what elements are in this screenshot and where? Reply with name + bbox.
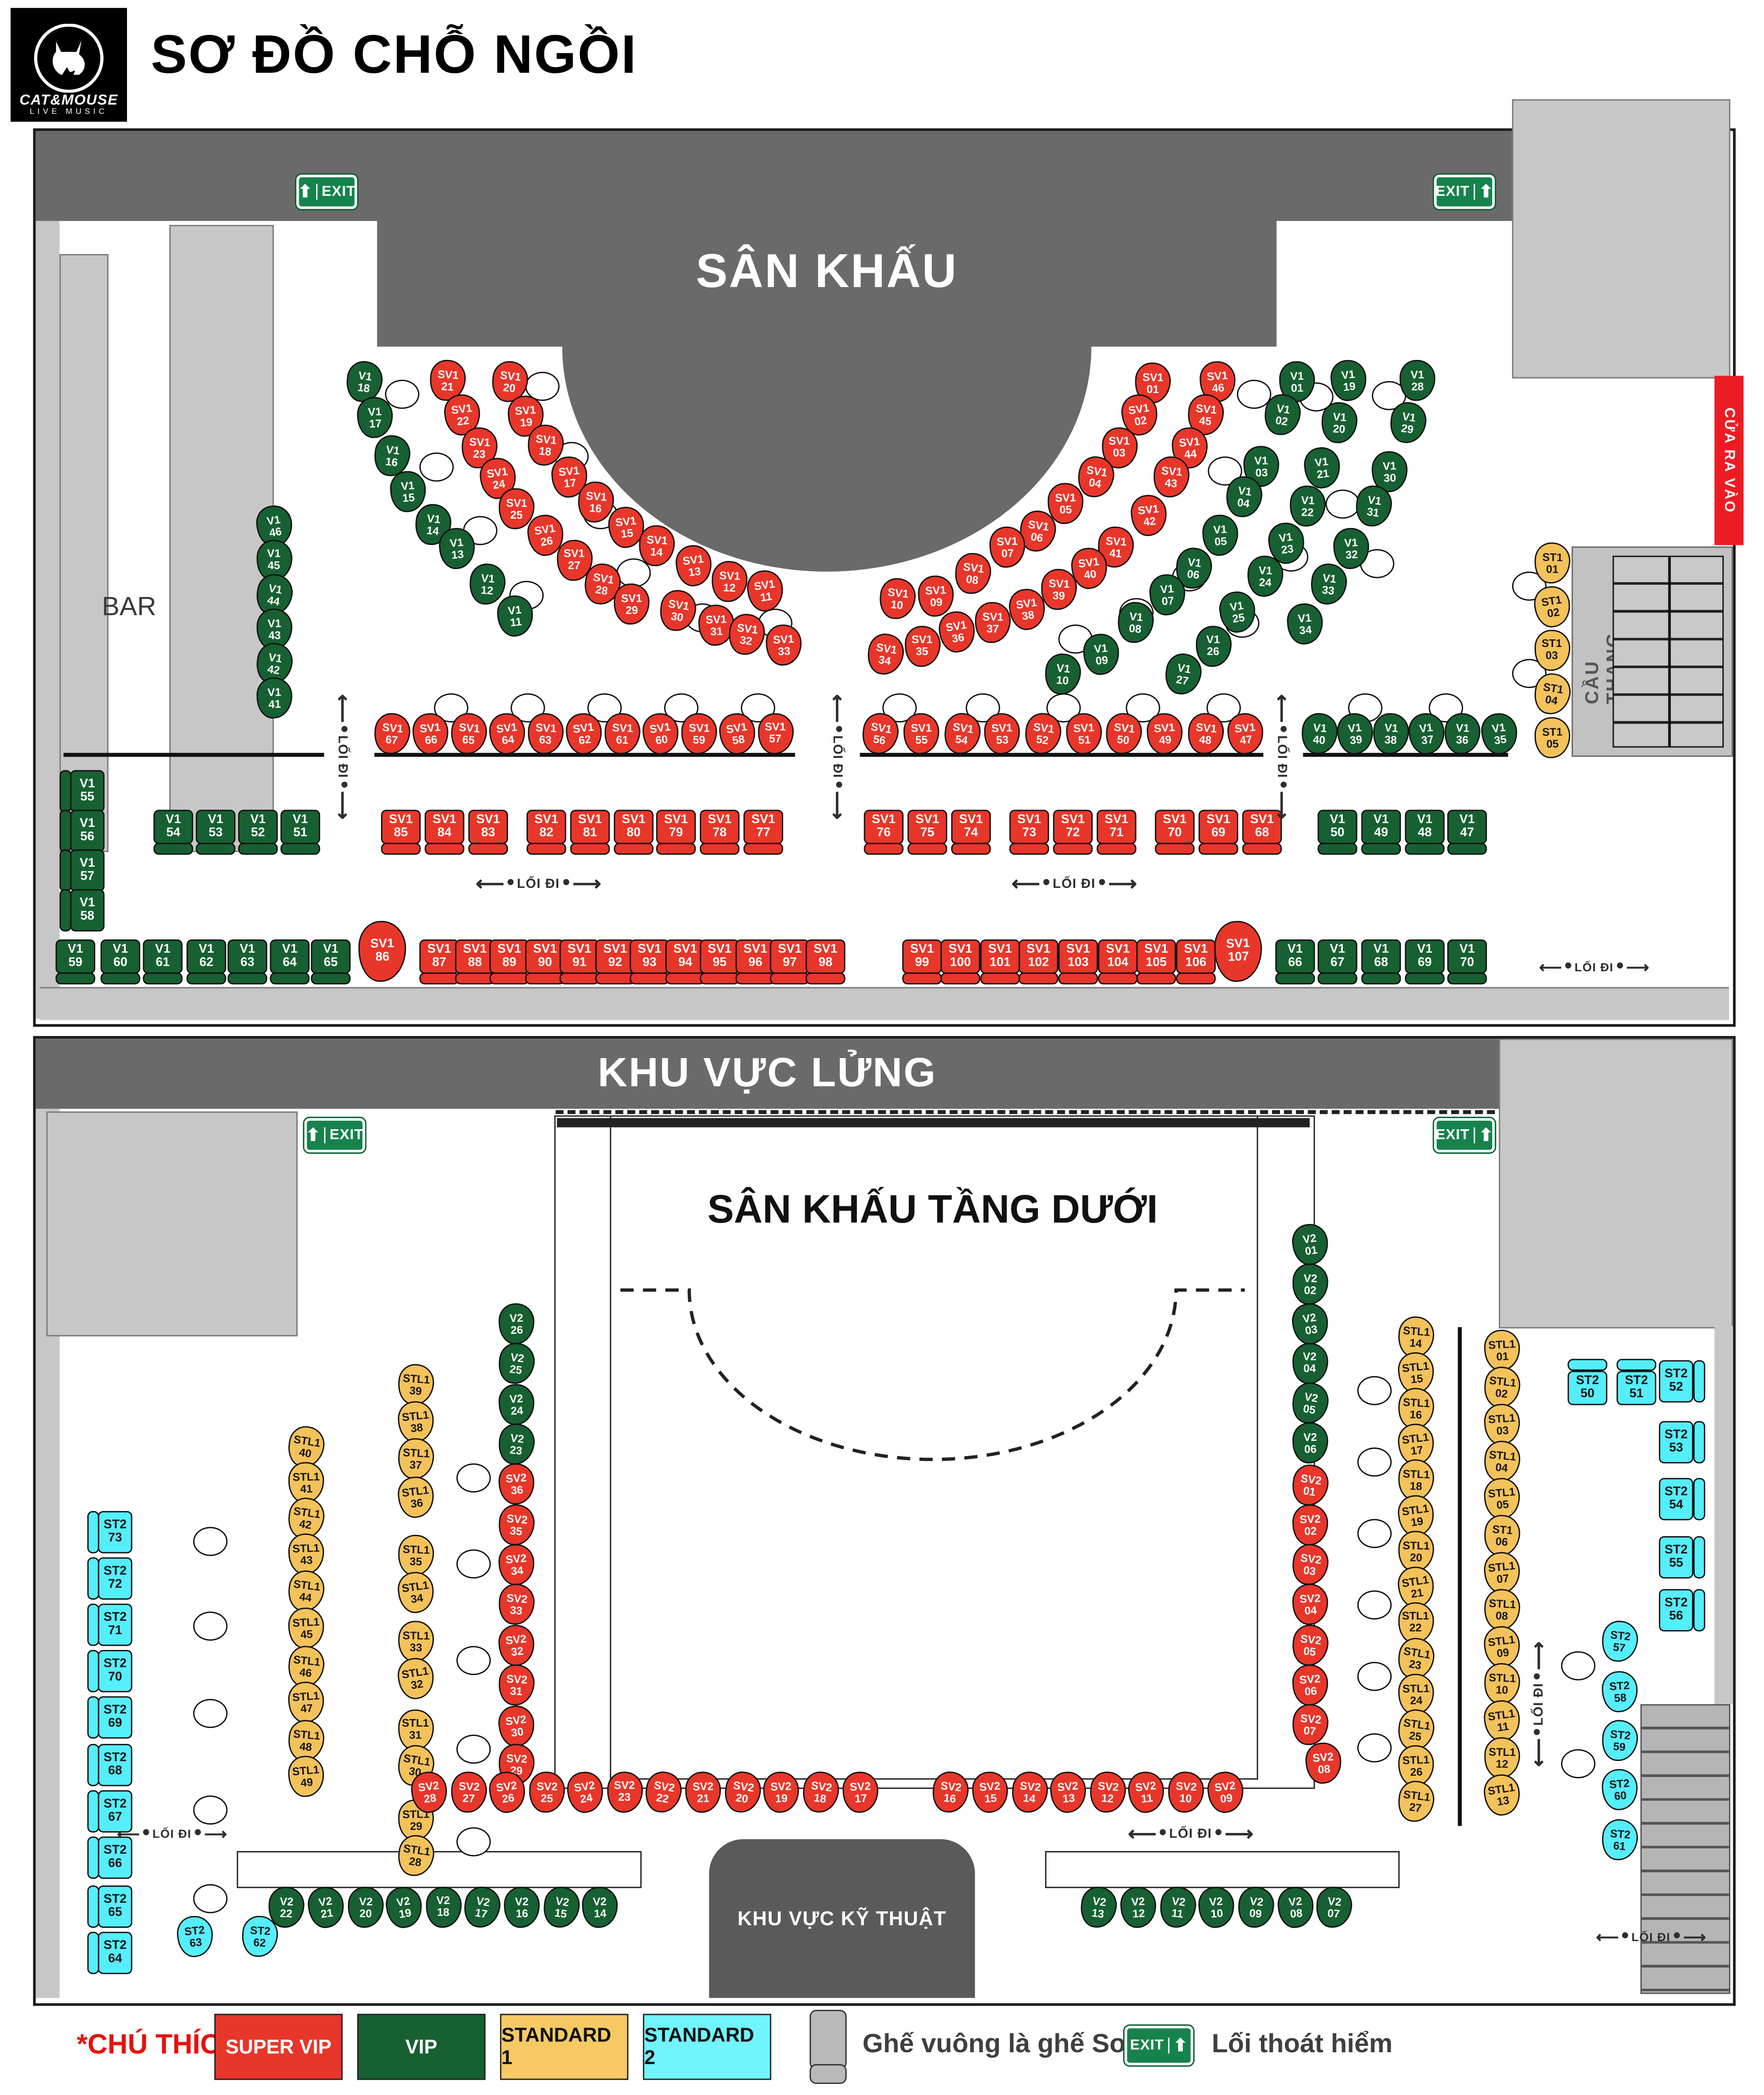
sofa-backrest	[1447, 973, 1487, 984]
exit-label: EXIT	[1432, 184, 1475, 200]
sofa-seat: V165	[311, 940, 351, 974]
sofa-backrest	[60, 849, 72, 892]
seat-v1-52[interactable]: V152	[238, 810, 278, 858]
seat-v1-65[interactable]: V165	[311, 940, 351, 987]
sofa-backrest	[614, 843, 654, 855]
sofa-backrest	[1693, 1536, 1705, 1578]
sofa-backrest	[1361, 843, 1401, 855]
sofa-seat: ST271	[98, 1604, 132, 1646]
seat-sv2-21[interactable]: SV221	[684, 1771, 721, 1812]
exit-sign-lower-right: ⬆EXIT	[1433, 1117, 1496, 1154]
table	[456, 1549, 491, 1578]
seat-sv1-55[interactable]: SV155	[903, 712, 939, 754]
sofa-backrest	[1361, 973, 1401, 984]
exit-label: EXIT	[1432, 1128, 1475, 1144]
table	[1357, 1662, 1391, 1691]
seat-sv1-96[interactable]: SV196	[736, 940, 776, 987]
sofa-backrest	[87, 1511, 99, 1553]
sofa-seat: SV196	[736, 940, 776, 974]
seat-v1-53[interactable]: V153	[196, 810, 236, 858]
legend-swatch-standard-1: STANDARD 1	[500, 2014, 628, 2080]
sofa-backrest	[455, 973, 495, 984]
mezz-left-block	[46, 1111, 298, 1336]
sofa-backrest	[941, 973, 980, 984]
seat-sv1-75[interactable]: SV175	[908, 810, 947, 858]
seat-sv1-77[interactable]: SV177	[743, 810, 783, 858]
sofa-seat: ST253	[1659, 1421, 1693, 1463]
sofa-backrest	[228, 973, 268, 984]
stage-label: SÂN KHẤU	[696, 243, 958, 299]
sofa-seat: V150	[1318, 810, 1358, 844]
sofa-seat: V147	[1447, 810, 1487, 844]
seat-sv1-85[interactable]: SV185	[381, 810, 421, 858]
sofa-seat: V152	[238, 810, 278, 844]
entrance-label: CỬA RA VÀO	[1721, 407, 1737, 513]
seat-st2-50[interactable]: ST250	[1568, 1357, 1607, 1405]
sofa-backrest	[1693, 1421, 1705, 1463]
sofa-backrest	[420, 973, 459, 984]
sofa-seat: SV195	[700, 940, 740, 974]
sofa-seat: V169	[1405, 940, 1445, 974]
staircase-lower	[1640, 1704, 1731, 1994]
seat-v1-24[interactable]: V124	[1246, 555, 1283, 596]
sofa-seat: ST273	[98, 1511, 132, 1553]
seat-sv1-102[interactable]: SV1102	[1019, 940, 1058, 987]
seat-st2-64[interactable]: ST264	[85, 1932, 133, 1974]
sofa-backrest	[87, 1696, 99, 1738]
seat-sv1-25[interactable]: SV125	[498, 487, 534, 529]
seat-sv1-99[interactable]: SV199	[902, 940, 942, 987]
table	[193, 1796, 227, 1825]
seat-sv1-104[interactable]: SV1104	[1098, 940, 1138, 987]
sofa-backrest	[143, 973, 183, 984]
table	[1561, 1651, 1596, 1680]
left-wall	[36, 221, 59, 1019]
seat-stl1-41[interactable]: STL141	[287, 1461, 324, 1503]
sofa-seat: ST270	[98, 1650, 132, 1692]
sofa-seat: SV1101	[980, 940, 1020, 974]
table	[1561, 1749, 1596, 1778]
sofa-seat: SV183	[468, 810, 508, 844]
seat-st1-01[interactable]: ST101	[1534, 542, 1570, 583]
sofa-backrest	[951, 843, 991, 855]
legend-swatch-super-vip: SUPER VIP	[214, 2014, 342, 2080]
sofa-seat: ST252	[1659, 1360, 1693, 1403]
sofa-seat: SV189	[489, 940, 529, 974]
sofa-seat: V157	[70, 849, 105, 892]
sofa-backrest	[560, 973, 599, 984]
exit-label: EXIT	[324, 1128, 367, 1144]
sofa-backrest	[630, 973, 670, 984]
aisle-label: ⟵•LỐI ĐI•⟶	[1539, 955, 1649, 979]
seat-sv1-69[interactable]: SV169	[1198, 810, 1238, 858]
seat-st2-73[interactable]: ST273	[85, 1511, 133, 1553]
sofa-backrest	[60, 889, 72, 931]
sofa-backrest	[1098, 973, 1138, 984]
table	[420, 453, 454, 482]
stair-divider	[1668, 557, 1670, 746]
sofa-seat: SV170	[1155, 810, 1195, 844]
sofa-backrest	[381, 843, 421, 855]
aisle-label: ⟵•LỐI ĐI•⟶	[1527, 1642, 1550, 1767]
sofa-seat: SV188	[455, 940, 495, 974]
sofa-backrest	[1693, 1360, 1705, 1403]
sofa-backrest	[806, 973, 845, 984]
bottom-wall-strip	[40, 987, 1729, 1020]
page-title: SƠ ĐỒ CHỖ NGỒI	[151, 24, 638, 86]
seat-sv1-83[interactable]: SV183	[468, 810, 508, 858]
seat-sv2-25[interactable]: SV225	[528, 1771, 565, 1812]
sofa-backrest	[87, 1932, 99, 1974]
sofa-backrest	[902, 973, 942, 984]
legend-swatch-standard-2: STANDARD 2	[643, 2014, 771, 2080]
aisle-label: ⟵•LỐI ĐI•⟶	[825, 694, 849, 820]
seat-st1-05[interactable]: ST105	[1534, 716, 1570, 757]
seat-v2-02[interactable]: V202	[1292, 1263, 1328, 1304]
seat-v1-66[interactable]: V166	[1275, 940, 1315, 987]
sofa-backrest	[1053, 843, 1093, 855]
seat-stl1-12[interactable]: STL112	[1483, 1736, 1520, 1778]
sofa-backrest	[1693, 1478, 1705, 1520]
sofa-seat: ST256	[1659, 1589, 1693, 1631]
exit-label: EXIT	[316, 184, 359, 200]
sofa-backrest	[1058, 973, 1098, 984]
seat-st2-71[interactable]: ST271	[85, 1604, 133, 1646]
sofa-seat: V158	[70, 889, 105, 931]
seat-v1-51[interactable]: V151	[281, 810, 320, 858]
seat-sv1-93[interactable]: SV193	[630, 940, 670, 987]
seat-sv1-95[interactable]: SV195	[700, 940, 740, 987]
exit-sign-lower-left: ⬆EXIT	[303, 1117, 367, 1154]
sofa-backrest	[665, 973, 705, 984]
sofa-seat: V149	[1361, 810, 1401, 844]
seat-sv1-74[interactable]: SV174	[951, 810, 991, 858]
seat-v1-67[interactable]: V167	[1318, 940, 1358, 987]
sofa-seat: ST255	[1659, 1536, 1693, 1578]
seat-sv1-91[interactable]: SV191	[560, 940, 599, 987]
sofa-backrest	[1009, 843, 1049, 855]
seat-sv1-79[interactable]: SV179	[656, 810, 696, 858]
sofa-backrest	[770, 973, 810, 984]
sofa-seat: SV181	[570, 810, 610, 844]
sofa-backrest	[468, 843, 508, 855]
seat-sv1-29[interactable]: SV129	[613, 583, 649, 624]
legend-sofa-note: Ghế vuông là ghế Sofa	[863, 2030, 1149, 2060]
table	[385, 380, 419, 409]
sofa-seat: SV177	[743, 810, 783, 844]
sofa-seat: V168	[1361, 940, 1401, 974]
seat-sv1-90[interactable]: SV190	[525, 940, 565, 987]
top-right-wall	[1512, 99, 1731, 378]
seat-st2-55[interactable]: ST255	[1659, 1536, 1707, 1578]
sofa-seat: SV1100	[941, 940, 980, 974]
sofa-seat: SV174	[951, 810, 991, 844]
aisle-label: ⟵•LỐI ĐI•⟶	[1270, 694, 1294, 820]
seat-v1-61[interactable]: V161	[143, 940, 183, 987]
seat-stl1-24[interactable]: STL124	[1397, 1673, 1434, 1714]
seat-st2-54[interactable]: ST254	[1659, 1478, 1707, 1520]
sofa-backrest	[1318, 973, 1358, 984]
sofa-backrest	[101, 973, 141, 984]
sofa-backrest	[55, 973, 95, 984]
seat-st2-68[interactable]: ST268	[85, 1744, 133, 1786]
sofa-seat: ST254	[1659, 1478, 1693, 1520]
sofa-seat: SV191	[560, 940, 599, 974]
sofa-backrest	[1198, 843, 1238, 855]
table	[193, 1884, 227, 1913]
sofa-backrest	[908, 843, 947, 855]
seat-sv1-87[interactable]: SV187	[420, 940, 459, 987]
sofa-backrest	[1693, 1589, 1705, 1631]
mezzanine-title: KHU VỰC LỬNG	[598, 1049, 937, 1097]
up-arrow-icon: ⬆	[294, 181, 316, 202]
platform-right	[1045, 1851, 1400, 1888]
table	[456, 1646, 491, 1675]
seat-st2-69[interactable]: ST269	[85, 1696, 133, 1738]
sofa-seat: SV194	[665, 940, 705, 974]
sofa-seat: SV169	[1198, 810, 1238, 844]
sofa-seat: SV197	[770, 940, 810, 974]
seat-st2-53[interactable]: ST253	[1659, 1421, 1707, 1463]
platform-left	[237, 1851, 641, 1888]
cat-logo-icon	[30, 24, 107, 93]
sofa-seat: SV198	[806, 940, 845, 974]
sofa-backrest	[736, 973, 776, 984]
seat-st2-70[interactable]: ST270	[85, 1650, 133, 1692]
seat-v1-50[interactable]: V150	[1318, 810, 1358, 858]
seat-v1-58[interactable]: V158	[57, 889, 105, 931]
sofa-backrest	[87, 1837, 99, 1879]
seat-v1-47[interactable]: V147	[1447, 810, 1487, 858]
sofa-seat: SV175	[908, 810, 947, 844]
sofa-seat: SV184	[425, 810, 464, 844]
sofa-backrest	[525, 973, 565, 984]
aisle-label: ⟵•LỐI ĐI•⟶	[1596, 1925, 1706, 1949]
sofa-backrest	[980, 973, 1020, 984]
up-arrow-icon: ⬆	[302, 1125, 324, 1146]
aisle-label: ⟵•LỐI ĐI•⟶	[331, 694, 354, 820]
sofa-backrest	[1405, 843, 1445, 855]
seat-stl1-33[interactable]: STL133	[397, 1620, 433, 1661]
exit-label: EXIT	[1126, 2038, 1169, 2054]
sofa-backrest	[154, 843, 193, 855]
sofa-backrest	[87, 1650, 99, 1692]
sofa-backrest	[1568, 1359, 1607, 1371]
sofa-backrest	[1097, 843, 1137, 855]
sofa-seat: SV187	[420, 940, 459, 974]
sofa-backrest	[87, 1744, 99, 1786]
venue-logo: CAT&MOUSE LIVE MUSIC	[11, 8, 127, 122]
aisle-label: ⟵•LỐI ĐI•⟶	[1012, 872, 1137, 895]
sofa-seat: SV178	[700, 810, 740, 844]
seat-sv1-71[interactable]: SV171	[1097, 810, 1137, 858]
seat-sv1-82[interactable]: SV182	[527, 810, 566, 858]
seat-sv1-105[interactable]: SV1105	[1136, 940, 1176, 987]
sofa-seat: V148	[1405, 810, 1445, 844]
technical-area: KHU VỰC KỸ THUẬT	[709, 1839, 975, 1998]
sofa-backrest	[270, 973, 310, 984]
seat-v1-59[interactable]: V159	[55, 940, 95, 987]
sofa-seat: V170	[1447, 940, 1487, 974]
sofa-seat: V162	[187, 940, 226, 974]
seat-sv1-81[interactable]: SV181	[570, 810, 610, 858]
sofa-seat: SV1103	[1058, 940, 1098, 974]
sofa-seat: SV185	[381, 810, 421, 844]
seat-v2-20[interactable]: V220	[347, 1886, 383, 1927]
seat-v1-62[interactable]: V162	[187, 940, 226, 987]
sofa-backrest	[60, 810, 72, 852]
seat-sv1-92[interactable]: SV192	[595, 940, 635, 987]
seat-sv1-37[interactable]: SV137	[974, 601, 1010, 643]
sofa-seat: ST269	[98, 1696, 132, 1738]
seat-v1-69[interactable]: V169	[1405, 940, 1445, 987]
sofa-backrest	[1318, 843, 1358, 855]
sofa-seat: ST264	[98, 1932, 132, 1974]
exit-sign-top-right: ⬆EXIT	[1433, 173, 1496, 210]
sofa-backrest	[864, 843, 904, 855]
seat-v1-68[interactable]: V168	[1361, 940, 1401, 987]
up-arrow-icon: ⬆	[1475, 1125, 1497, 1146]
mezz-right-wall	[1714, 1326, 1733, 1704]
table	[1325, 489, 1360, 519]
seat-v2-16[interactable]: V216	[503, 1886, 539, 1927]
seat-sv1-73[interactable]: SV173	[1009, 810, 1049, 858]
legend-swatch-vip: VIP	[357, 2014, 486, 2080]
sofa-seat: V160	[101, 940, 141, 974]
sofa-seat: SV176	[864, 810, 904, 844]
sofa-backrest	[1405, 973, 1445, 984]
seat-v1-28[interactable]: V128	[1399, 359, 1435, 401]
sofa-seat: V166	[1275, 940, 1315, 974]
seat-st2-72[interactable]: ST272	[85, 1557, 133, 1600]
sofa-seat: ST272	[98, 1557, 132, 1600]
floor-line	[63, 753, 324, 757]
seat-st2-56[interactable]: ST256	[1659, 1589, 1707, 1631]
table	[1357, 1376, 1391, 1405]
sofa-backrest	[1155, 843, 1195, 855]
table	[456, 1463, 491, 1492]
seat-sv1-72[interactable]: SV172	[1053, 810, 1093, 858]
seat-sv1-59[interactable]: SV159	[680, 712, 717, 754]
sofa-backrest	[87, 1885, 99, 1928]
sofa-backrest	[1136, 973, 1176, 984]
sofa-seat: SV192	[595, 940, 635, 974]
seat-st2-65[interactable]: ST265	[85, 1885, 133, 1928]
seat-sv1-89[interactable]: SV189	[489, 940, 529, 987]
entrance-door: CỬA RA VÀO	[1714, 376, 1744, 545]
seat-v1-70[interactable]: V170	[1447, 940, 1487, 987]
sofa-backrest	[1275, 973, 1315, 984]
sofa-seat: SV180	[614, 810, 654, 844]
logo-text: CAT&MOUSE	[19, 93, 118, 109]
sofa-seat: SV171	[1097, 810, 1137, 844]
stage-lower-label: SÂN KHẤU TẦNG DƯỚI	[707, 1188, 1158, 1233]
seat-v1-49[interactable]: V149	[1361, 810, 1401, 858]
bar-counter-left	[60, 254, 109, 852]
seat-sv1-101[interactable]: SV1101	[980, 940, 1020, 987]
mezz-top-right-wall	[1499, 1039, 1733, 1328]
staircase-upper: CẦU THANG	[1572, 547, 1733, 757]
sofa-seat: SV1106	[1176, 940, 1216, 974]
seat-sv1-80[interactable]: SV180	[614, 810, 654, 858]
sofa-seat: V154	[154, 810, 193, 844]
seat-sv1-94[interactable]: SV194	[665, 940, 705, 987]
seat-st2-52[interactable]: ST252	[1659, 1360, 1707, 1403]
seat-sv1-84[interactable]: SV184	[425, 810, 464, 858]
seat-sv1-70[interactable]: SV170	[1155, 810, 1195, 858]
seat-sv1-98[interactable]: SV198	[806, 940, 845, 987]
sofa-seat: SV193	[630, 940, 670, 974]
sofa-seat: V156	[70, 810, 105, 852]
sofa-seat: SV182	[527, 810, 566, 844]
seat-v1-54[interactable]: V154	[154, 810, 193, 858]
seat-sv1-100[interactable]: SV1100	[941, 940, 980, 987]
seat-sv1-78[interactable]: SV178	[700, 810, 740, 858]
seat-sv1-76[interactable]: SV176	[864, 810, 904, 858]
stage-lower-dashed-curve	[610, 1270, 1256, 1482]
seat-v1-63[interactable]: V163	[228, 940, 268, 987]
seat-sv1-106[interactable]: SV1106	[1176, 940, 1216, 987]
seat-st2-51[interactable]: ST251	[1617, 1357, 1656, 1405]
table	[1357, 1519, 1391, 1548]
sofa-seat: V161	[143, 940, 183, 974]
table	[1357, 1448, 1391, 1477]
exit-sign-top-left: ⬆EXIT	[295, 173, 359, 210]
sofa-seat: SV1102	[1019, 940, 1058, 974]
seat-v1-64[interactable]: V164	[270, 940, 310, 987]
legend-exit-note: Lối thoát hiểm	[1212, 2030, 1393, 2060]
up-arrow-icon: ⬆	[1475, 181, 1497, 202]
sofa-seat: V151	[281, 810, 320, 844]
divider-wall	[1458, 1327, 1462, 1826]
technical-label: KHU VỰC KỸ THUẬT	[737, 1907, 947, 1930]
seat-v1-48[interactable]: V148	[1405, 810, 1445, 858]
seat-sv1-97[interactable]: SV197	[770, 940, 810, 987]
seat-sv1-88[interactable]: SV188	[455, 940, 495, 987]
sofa-backrest	[700, 843, 740, 855]
sofa-backrest	[743, 843, 783, 855]
table	[193, 1699, 227, 1728]
sofa-seat: ST268	[98, 1744, 132, 1786]
seat-v2-06[interactable]: V206	[1292, 1421, 1328, 1463]
seat-v1-57[interactable]: V157	[57, 849, 105, 892]
seat-stl1-20[interactable]: STL120	[1397, 1530, 1434, 1571]
sofa-seat: SV172	[1053, 810, 1093, 844]
sofa-seat: SV1104	[1098, 940, 1138, 974]
sofa-backrest	[1176, 973, 1216, 984]
table	[456, 1735, 491, 1764]
legend-exit-icon: ⬆EXIT	[1123, 2024, 1195, 2067]
sofa-seat: V163	[228, 940, 268, 974]
seat-v1-60[interactable]: V160	[101, 940, 141, 987]
sofa-backrest	[527, 843, 566, 855]
sofa-backrest	[87, 1790, 99, 1832]
seat-sv1-103[interactable]: SV1103	[1058, 940, 1098, 987]
logo-subtext: LIVE MUSIC	[30, 108, 108, 116]
sofa-backrest	[700, 973, 740, 984]
sofa-seat: ST251	[1617, 1371, 1656, 1405]
sofa-backrest	[595, 973, 635, 984]
seat-v1-55[interactable]: V155	[57, 770, 105, 813]
seat-v1-56[interactable]: V156	[57, 810, 105, 852]
sofa-seat: ST250	[1568, 1371, 1607, 1405]
aisle-label: ⟵•LỐI ĐI•⟶	[117, 1822, 227, 1846]
table	[456, 1827, 491, 1857]
sofa-seat: SV199	[902, 940, 942, 974]
sofa-backrest	[425, 843, 464, 855]
bar-counter-right	[169, 225, 274, 852]
stage-lower-dashed-edge	[556, 1110, 1495, 1114]
